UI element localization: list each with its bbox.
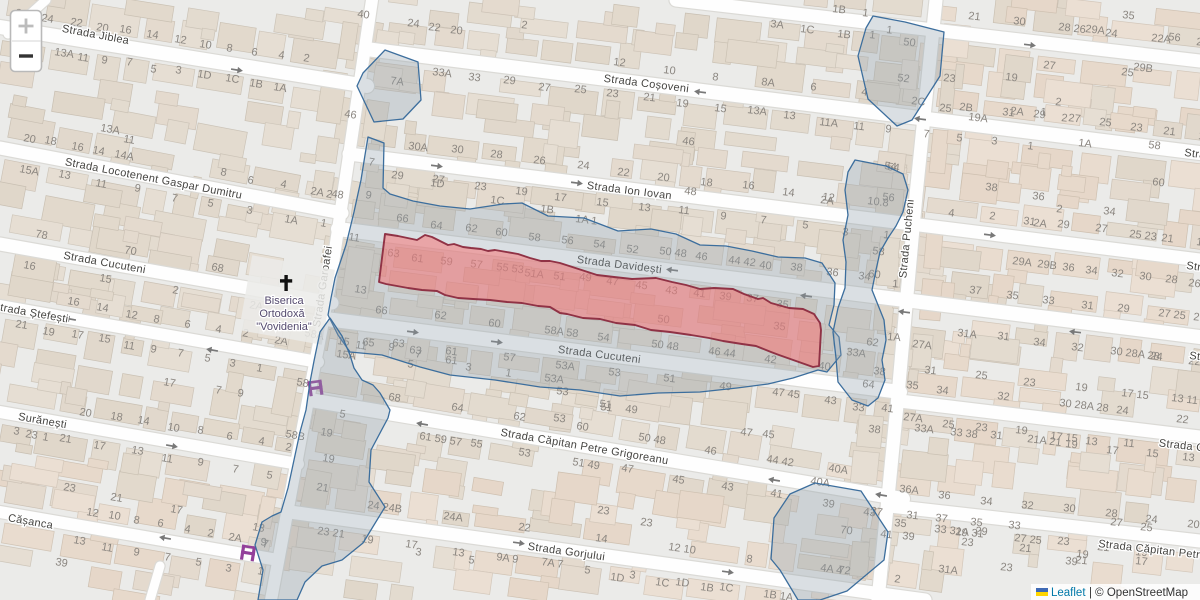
svg-text:68: 68 xyxy=(210,261,224,275)
svg-text:33A: 33A xyxy=(432,66,454,80)
svg-text:34: 34 xyxy=(936,384,950,397)
svg-text:14: 14 xyxy=(95,301,109,315)
svg-text:| © OpenStreetMap: | © OpenStreetMap xyxy=(1089,587,1188,599)
svg-text:19A: 19A xyxy=(968,111,990,125)
svg-text:36A: 36A xyxy=(899,483,920,497)
svg-text:29B: 29B xyxy=(1133,61,1154,75)
svg-text:13: 13 xyxy=(130,444,144,458)
svg-text:31A: 31A xyxy=(938,563,960,577)
svg-text:10: 10 xyxy=(663,64,677,77)
svg-text:31: 31 xyxy=(924,364,938,377)
svg-text:22: 22 xyxy=(617,166,631,179)
svg-text:30: 30 xyxy=(1139,270,1153,283)
svg-text:17: 17 xyxy=(1135,555,1149,568)
svg-text:49: 49 xyxy=(625,403,639,416)
svg-text:17: 17 xyxy=(554,191,568,204)
svg-text:21: 21 xyxy=(109,491,123,505)
svg-text:16: 16 xyxy=(66,295,80,309)
svg-text:37: 37 xyxy=(969,284,983,297)
svg-text:17: 17 xyxy=(162,376,176,390)
svg-text:12: 12 xyxy=(124,308,138,322)
svg-text:13: 13 xyxy=(72,534,86,548)
svg-text:20: 20 xyxy=(657,171,671,184)
svg-text:12: 12 xyxy=(174,33,188,47)
svg-text:11: 11 xyxy=(77,51,90,65)
svg-text:19: 19 xyxy=(1015,424,1029,437)
svg-text:15: 15 xyxy=(596,196,610,209)
svg-text:29B: 29B xyxy=(1037,258,1058,272)
svg-text:23: 23 xyxy=(1130,121,1144,134)
svg-text:20: 20 xyxy=(450,24,464,37)
svg-text:23: 23 xyxy=(24,428,38,442)
svg-text:11: 11 xyxy=(100,541,113,555)
svg-text:28: 28 xyxy=(490,148,504,161)
svg-text:31: 31 xyxy=(906,509,920,522)
svg-text:25: 25 xyxy=(1140,521,1154,534)
svg-text:23: 23 xyxy=(62,481,76,495)
svg-text:19: 19 xyxy=(1075,381,1089,394)
svg-text:1A: 1A xyxy=(273,81,289,95)
svg-text:19: 19 xyxy=(41,325,55,339)
svg-text:36: 36 xyxy=(1062,261,1076,274)
svg-text:19: 19 xyxy=(1196,236,1200,249)
svg-text:62: 62 xyxy=(513,410,527,424)
svg-text:19: 19 xyxy=(1005,71,1019,84)
svg-text:43: 43 xyxy=(824,394,838,407)
svg-text:31: 31 xyxy=(997,330,1011,343)
svg-text:13A: 13A xyxy=(747,104,769,118)
svg-text:45: 45 xyxy=(762,428,776,441)
svg-text:21: 21 xyxy=(1019,542,1033,555)
svg-text:29: 29 xyxy=(1057,218,1071,231)
svg-text:1B: 1B xyxy=(832,3,847,17)
svg-text:33: 33 xyxy=(468,71,482,84)
svg-text:20: 20 xyxy=(78,406,92,420)
svg-text:Biserica: Biserica xyxy=(264,295,304,307)
svg-text:12: 12 xyxy=(613,56,627,69)
svg-text:13: 13 xyxy=(452,546,466,560)
svg-text:17: 17 xyxy=(70,328,84,342)
svg-text:16: 16 xyxy=(22,259,36,273)
svg-text:32: 32 xyxy=(1111,267,1125,280)
svg-text:Ortodoxă: Ortodoxă xyxy=(259,308,305,320)
svg-text:24: 24 xyxy=(1150,350,1164,363)
svg-text:27: 27 xyxy=(1043,59,1057,72)
svg-text:1B: 1B xyxy=(249,77,264,91)
svg-text:14: 14 xyxy=(91,144,105,158)
svg-text:48: 48 xyxy=(684,185,698,198)
svg-text:27: 27 xyxy=(1095,222,1109,235)
svg-text:68: 68 xyxy=(388,391,402,405)
svg-text:25: 25 xyxy=(574,83,588,96)
svg-text:53: 53 xyxy=(518,446,532,460)
svg-text:43: 43 xyxy=(721,480,735,494)
svg-text:51: 51 xyxy=(599,398,613,411)
svg-text:46: 46 xyxy=(682,135,696,148)
svg-text:70: 70 xyxy=(123,244,137,258)
svg-text:22: 22 xyxy=(518,521,532,535)
svg-text:21: 21 xyxy=(968,10,982,23)
svg-text:28: 28 xyxy=(1165,273,1179,286)
svg-text:25: 25 xyxy=(939,102,952,115)
svg-text:Leaflet: Leaflet xyxy=(1051,587,1086,599)
svg-text:29: 29 xyxy=(1117,302,1131,315)
svg-text:34: 34 xyxy=(980,495,994,508)
svg-text:11: 11 xyxy=(160,452,173,466)
svg-text:25: 25 xyxy=(975,369,989,382)
svg-text:15: 15 xyxy=(97,332,111,346)
svg-text:38: 38 xyxy=(868,423,882,436)
svg-text:17: 17 xyxy=(92,439,106,453)
svg-text:27: 27 xyxy=(1068,112,1082,125)
svg-text:30: 30 xyxy=(1063,502,1077,515)
svg-text:36: 36 xyxy=(1032,190,1046,203)
svg-text:19: 19 xyxy=(676,97,690,110)
svg-text:14: 14 xyxy=(782,186,796,199)
svg-text:21: 21 xyxy=(1193,311,1200,324)
svg-text:45: 45 xyxy=(672,473,686,487)
svg-text:1C: 1C xyxy=(225,72,241,86)
svg-text:64: 64 xyxy=(451,401,465,415)
svg-text:15: 15 xyxy=(714,102,728,115)
svg-text:30A: 30A xyxy=(408,140,430,154)
svg-text:55: 55 xyxy=(470,437,484,451)
svg-text:30: 30 xyxy=(1013,15,1027,28)
svg-text:2A: 2A xyxy=(820,194,835,208)
svg-text:40: 40 xyxy=(357,8,371,22)
svg-text:1B: 1B xyxy=(700,581,715,595)
svg-text:32: 32 xyxy=(997,390,1011,403)
svg-text:24: 24 xyxy=(1105,27,1119,40)
svg-text:1D: 1D xyxy=(610,571,626,585)
svg-text:18: 18 xyxy=(43,134,57,148)
svg-text:13: 13 xyxy=(783,109,797,122)
svg-text:53: 53 xyxy=(553,412,567,425)
svg-text:35: 35 xyxy=(1122,9,1136,22)
svg-text:32: 32 xyxy=(1071,341,1085,354)
svg-text:17: 17 xyxy=(169,503,183,517)
svg-text:11: 11 xyxy=(122,339,135,353)
svg-text:23: 23 xyxy=(1000,561,1014,574)
svg-text:41: 41 xyxy=(770,487,784,501)
svg-text:12: 12 xyxy=(85,506,99,520)
svg-text:31A: 31A xyxy=(957,327,979,341)
svg-text:1C: 1C xyxy=(719,581,735,595)
svg-text:26: 26 xyxy=(533,154,547,167)
svg-text:21: 21 xyxy=(58,432,72,446)
svg-text:29: 29 xyxy=(503,74,517,87)
svg-text:23: 23 xyxy=(597,504,611,518)
svg-text:34: 34 xyxy=(1033,336,1047,349)
svg-text:48: 48 xyxy=(331,188,345,202)
svg-text:35: 35 xyxy=(906,379,920,392)
svg-text:60: 60 xyxy=(1152,176,1166,189)
svg-text:23: 23 xyxy=(1057,535,1071,548)
svg-text:10: 10 xyxy=(199,38,213,52)
svg-text:23: 23 xyxy=(1023,376,1037,389)
svg-text:1C: 1C xyxy=(655,576,671,590)
svg-text:18: 18 xyxy=(700,176,714,189)
svg-text:14: 14 xyxy=(595,532,609,546)
svg-text:16: 16 xyxy=(742,179,756,192)
svg-text:38: 38 xyxy=(985,181,999,194)
svg-text:1A: 1A xyxy=(887,331,902,344)
svg-text:58: 58 xyxy=(1148,139,1162,152)
svg-text:31: 31 xyxy=(1002,106,1016,119)
svg-text:33: 33 xyxy=(1042,294,1056,307)
svg-text:20: 20 xyxy=(22,132,36,146)
svg-text:23: 23 xyxy=(606,87,620,100)
svg-text:21: 21 xyxy=(643,91,657,104)
svg-text:46: 46 xyxy=(704,444,718,458)
svg-text:11: 11 xyxy=(94,177,107,191)
svg-text:22: 22 xyxy=(428,21,442,34)
svg-text:27: 27 xyxy=(1110,516,1124,529)
svg-text:3A: 3A xyxy=(770,18,785,32)
svg-text:11: 11 xyxy=(853,120,866,133)
svg-text:15: 15 xyxy=(98,272,112,286)
svg-text:34: 34 xyxy=(1085,264,1099,277)
svg-text:29A: 29A xyxy=(1012,255,1034,269)
svg-text:14: 14 xyxy=(146,28,160,42)
svg-text:24: 24 xyxy=(41,12,55,26)
svg-text:29A: 29A xyxy=(1085,23,1107,37)
svg-text:19: 19 xyxy=(515,185,529,198)
svg-text:1D: 1D xyxy=(675,576,691,590)
svg-text:26: 26 xyxy=(1188,277,1200,290)
svg-text:15: 15 xyxy=(1146,447,1160,460)
svg-text:20: 20 xyxy=(1187,518,1200,531)
svg-text:17: 17 xyxy=(1106,444,1120,457)
svg-text:47: 47 xyxy=(621,462,635,476)
svg-text:23: 23 xyxy=(474,180,488,193)
svg-text:13: 13 xyxy=(1085,435,1099,448)
svg-text:24: 24 xyxy=(577,159,591,172)
svg-text:1D: 1D xyxy=(430,177,445,191)
svg-text:32: 32 xyxy=(1021,499,1035,512)
svg-text:1D: 1D xyxy=(197,68,213,82)
svg-text:27A: 27A xyxy=(912,338,934,352)
svg-text:21: 21 xyxy=(1163,125,1177,138)
svg-text:16: 16 xyxy=(70,140,84,154)
svg-text:36: 36 xyxy=(938,489,952,502)
svg-text:33A: 33A xyxy=(914,422,936,436)
svg-text:60: 60 xyxy=(576,420,590,434)
svg-text:21: 21 xyxy=(1161,232,1175,245)
svg-text:27: 27 xyxy=(538,81,552,94)
svg-text:10: 10 xyxy=(107,509,121,523)
svg-text:41: 41 xyxy=(881,402,895,415)
svg-text:14: 14 xyxy=(136,414,150,428)
svg-text:13: 13 xyxy=(638,201,652,214)
svg-text:1C: 1C xyxy=(800,23,815,37)
svg-text:25: 25 xyxy=(1099,116,1113,129)
svg-text:46: 46 xyxy=(344,108,358,122)
svg-text:47: 47 xyxy=(740,426,754,439)
svg-text:18: 18 xyxy=(109,410,123,424)
svg-text:31: 31 xyxy=(1023,215,1037,228)
svg-text:31: 31 xyxy=(990,429,1004,442)
svg-text:13: 13 xyxy=(57,168,71,182)
svg-text:1A: 1A xyxy=(1078,137,1093,151)
svg-text:29: 29 xyxy=(955,526,969,539)
svg-text:1B: 1B xyxy=(837,28,852,41)
svg-text:8A: 8A xyxy=(761,76,776,90)
svg-text:24: 24 xyxy=(1116,404,1130,417)
svg-text:22: 22 xyxy=(1196,36,1200,49)
svg-text:34: 34 xyxy=(1103,205,1117,218)
svg-text:58: 58 xyxy=(295,376,309,390)
svg-text:"Vovidenia": "Vovidenia" xyxy=(256,321,312,333)
svg-text:56: 56 xyxy=(1168,31,1182,44)
svg-text:11: 11 xyxy=(678,204,691,217)
svg-text:22: 22 xyxy=(1176,413,1190,426)
svg-text:29: 29 xyxy=(391,169,405,182)
svg-text:11: 11 xyxy=(122,133,135,147)
svg-text:39: 39 xyxy=(902,530,916,543)
svg-text:19: 19 xyxy=(1065,438,1079,451)
svg-text:10: 10 xyxy=(166,421,180,435)
svg-text:35: 35 xyxy=(1006,289,1020,302)
svg-text:23: 23 xyxy=(943,72,956,85)
svg-text:35: 35 xyxy=(970,516,984,529)
svg-text:21: 21 xyxy=(1075,554,1089,567)
svg-text:31: 31 xyxy=(1081,299,1095,312)
svg-text:1: 1 xyxy=(892,278,899,290)
svg-text:24: 24 xyxy=(407,17,421,30)
svg-text:23: 23 xyxy=(640,516,654,530)
svg-text:11A: 11A xyxy=(819,116,840,130)
svg-text:33: 33 xyxy=(1008,519,1022,532)
svg-text:21: 21 xyxy=(14,318,28,332)
svg-text:30: 30 xyxy=(451,143,465,156)
svg-text:11: 11 xyxy=(1123,437,1136,450)
svg-text:37: 37 xyxy=(935,512,949,525)
svg-text:39: 39 xyxy=(54,556,68,570)
svg-text:78: 78 xyxy=(34,228,48,242)
svg-text:2A: 2A xyxy=(227,531,243,545)
